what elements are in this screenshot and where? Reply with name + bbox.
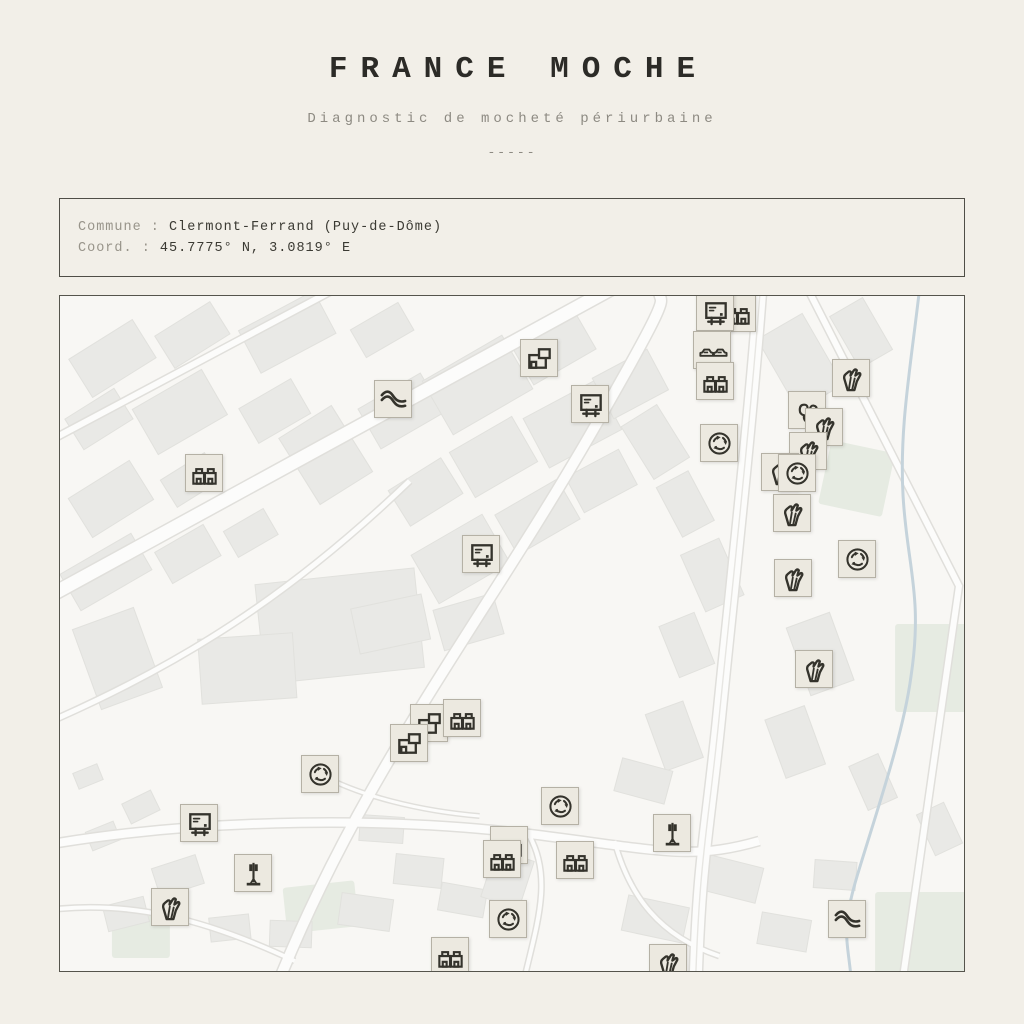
map-marker-roundabout[interactable] xyxy=(489,900,527,938)
map-marker-roundabout[interactable] xyxy=(700,424,738,462)
roundabout-icon xyxy=(545,791,576,822)
coord-value: 45.7775° N, 3.0819° E xyxy=(160,241,351,256)
page-subtitle: Diagnostic de mocheté périurbaine xyxy=(0,111,1024,127)
map-marker-wave[interactable] xyxy=(374,380,412,418)
wave-icon xyxy=(378,384,409,415)
map-marker-roundabout[interactable] xyxy=(541,787,579,825)
map-marker-antenna[interactable] xyxy=(653,814,691,852)
bigbox-icon xyxy=(524,343,555,374)
commune-label: Commune : xyxy=(78,220,160,235)
map-marker-twin[interactable] xyxy=(483,840,521,878)
map-marker-twin[interactable] xyxy=(185,454,223,492)
twin-icon xyxy=(487,844,518,875)
coord-label: Coord. : xyxy=(78,241,151,256)
hand-icon xyxy=(836,363,867,394)
twin-icon xyxy=(435,941,466,972)
map-marker-twin[interactable] xyxy=(556,841,594,879)
map-marker-twin[interactable] xyxy=(443,699,481,737)
header-divider: ----- xyxy=(0,145,1024,160)
cars-icon xyxy=(697,335,728,366)
hand-icon xyxy=(777,498,808,529)
map-marker-billboard[interactable] xyxy=(180,804,218,842)
hand-icon xyxy=(155,892,186,923)
commune-row: Commune : Clermont-Ferrand (Puy-de-Dôme) xyxy=(78,220,946,235)
hand-icon xyxy=(653,948,684,973)
map-marker-roundabout[interactable] xyxy=(301,755,339,793)
map-marker-twin[interactable] xyxy=(696,362,734,400)
map-marker-bigbox[interactable] xyxy=(520,339,558,377)
coord-row: Coord. : 45.7775° N, 3.0819° E xyxy=(78,241,946,256)
map-marker-hand[interactable] xyxy=(774,559,812,597)
map-marker-hand[interactable] xyxy=(795,650,833,688)
map-marker-billboard[interactable] xyxy=(462,535,500,573)
map-marker-antenna[interactable] xyxy=(234,854,272,892)
billboard-icon xyxy=(700,297,731,328)
map-canvas[interactable] xyxy=(59,295,965,972)
twin-icon xyxy=(447,703,478,734)
twin-icon xyxy=(189,458,220,489)
map-marker-twin[interactable] xyxy=(431,937,469,972)
map-marker-roundabout[interactable] xyxy=(838,540,876,578)
page: FRANCE MOCHE Diagnostic de mocheté périu… xyxy=(0,0,1024,972)
billboard-icon xyxy=(466,539,497,570)
header: FRANCE MOCHE Diagnostic de mocheté périu… xyxy=(0,52,1024,160)
billboard-icon xyxy=(184,808,215,839)
map-marker-roundabout[interactable] xyxy=(778,454,816,492)
map-marker-billboard[interactable] xyxy=(571,385,609,423)
hand-icon xyxy=(799,654,830,685)
antenna-icon xyxy=(238,858,269,889)
location-info-box: Commune : Clermont-Ferrand (Puy-de-Dôme)… xyxy=(59,198,965,277)
twin-icon xyxy=(560,845,591,876)
wave-icon xyxy=(832,904,863,935)
map-marker-hand[interactable] xyxy=(773,494,811,532)
map-marker-bigbox[interactable] xyxy=(390,724,428,762)
map-marker-hand[interactable] xyxy=(151,888,189,926)
marker-layer xyxy=(60,296,964,971)
page-title: FRANCE MOCHE xyxy=(13,52,1024,87)
hand-icon xyxy=(778,563,809,594)
roundabout-icon xyxy=(842,544,873,575)
commune-value: Clermont-Ferrand (Puy-de-Dôme) xyxy=(169,220,442,235)
map-marker-wave[interactable] xyxy=(828,900,866,938)
map-marker-hand[interactable] xyxy=(832,359,870,397)
roundabout-icon xyxy=(782,458,813,489)
bigbox-icon xyxy=(394,728,425,759)
billboard-icon xyxy=(575,389,606,420)
antenna-icon xyxy=(657,818,688,849)
map-marker-billboard[interactable] xyxy=(696,295,734,331)
twin-icon xyxy=(700,366,731,397)
roundabout-icon xyxy=(704,428,735,459)
roundabout-icon xyxy=(305,759,336,790)
roundabout-icon xyxy=(493,904,524,935)
map-marker-hand[interactable] xyxy=(649,944,687,972)
